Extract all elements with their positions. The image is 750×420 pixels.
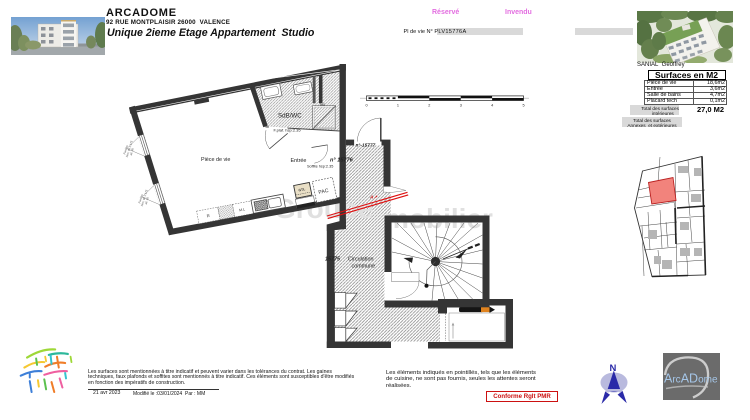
svg-text:2: 2 xyxy=(428,104,430,108)
svg-text:4: 4 xyxy=(491,104,493,108)
svg-text:15775: 15775 xyxy=(325,257,341,263)
svg-text:N: N xyxy=(610,363,617,374)
svg-text:ArcADome: ArcADome xyxy=(664,372,718,386)
svg-text:3: 3 xyxy=(460,104,462,108)
svg-text:all. 30: all. 30 xyxy=(144,196,150,205)
svg-text:commune: commune xyxy=(352,263,376,269)
svg-text:1: 1 xyxy=(397,104,399,108)
svg-text:n° 15776: n° 15776 xyxy=(330,158,354,164)
svg-text:5: 5 xyxy=(523,104,525,108)
svg-text:Entrée: Entrée xyxy=(291,158,307,164)
svg-text:0: 0 xyxy=(366,104,368,108)
svg-text:Pièce de vie: Pièce de vie xyxy=(201,157,230,163)
svg-text:Circulation: Circulation xyxy=(348,257,373,263)
svg-text:F.plaf. hsp:2.35: F.plaf. hsp:2.35 xyxy=(274,127,302,132)
svg-text:Soffite hsp:2.35: Soffite hsp:2.35 xyxy=(307,165,333,169)
svg-text:SdB/WC: SdB/WC xyxy=(278,112,302,119)
svg-text:A↗: A↗ xyxy=(369,195,377,200)
svg-text:BàS: BàS xyxy=(320,103,325,107)
svg-text:n°-15777: n°-15777 xyxy=(356,143,376,149)
